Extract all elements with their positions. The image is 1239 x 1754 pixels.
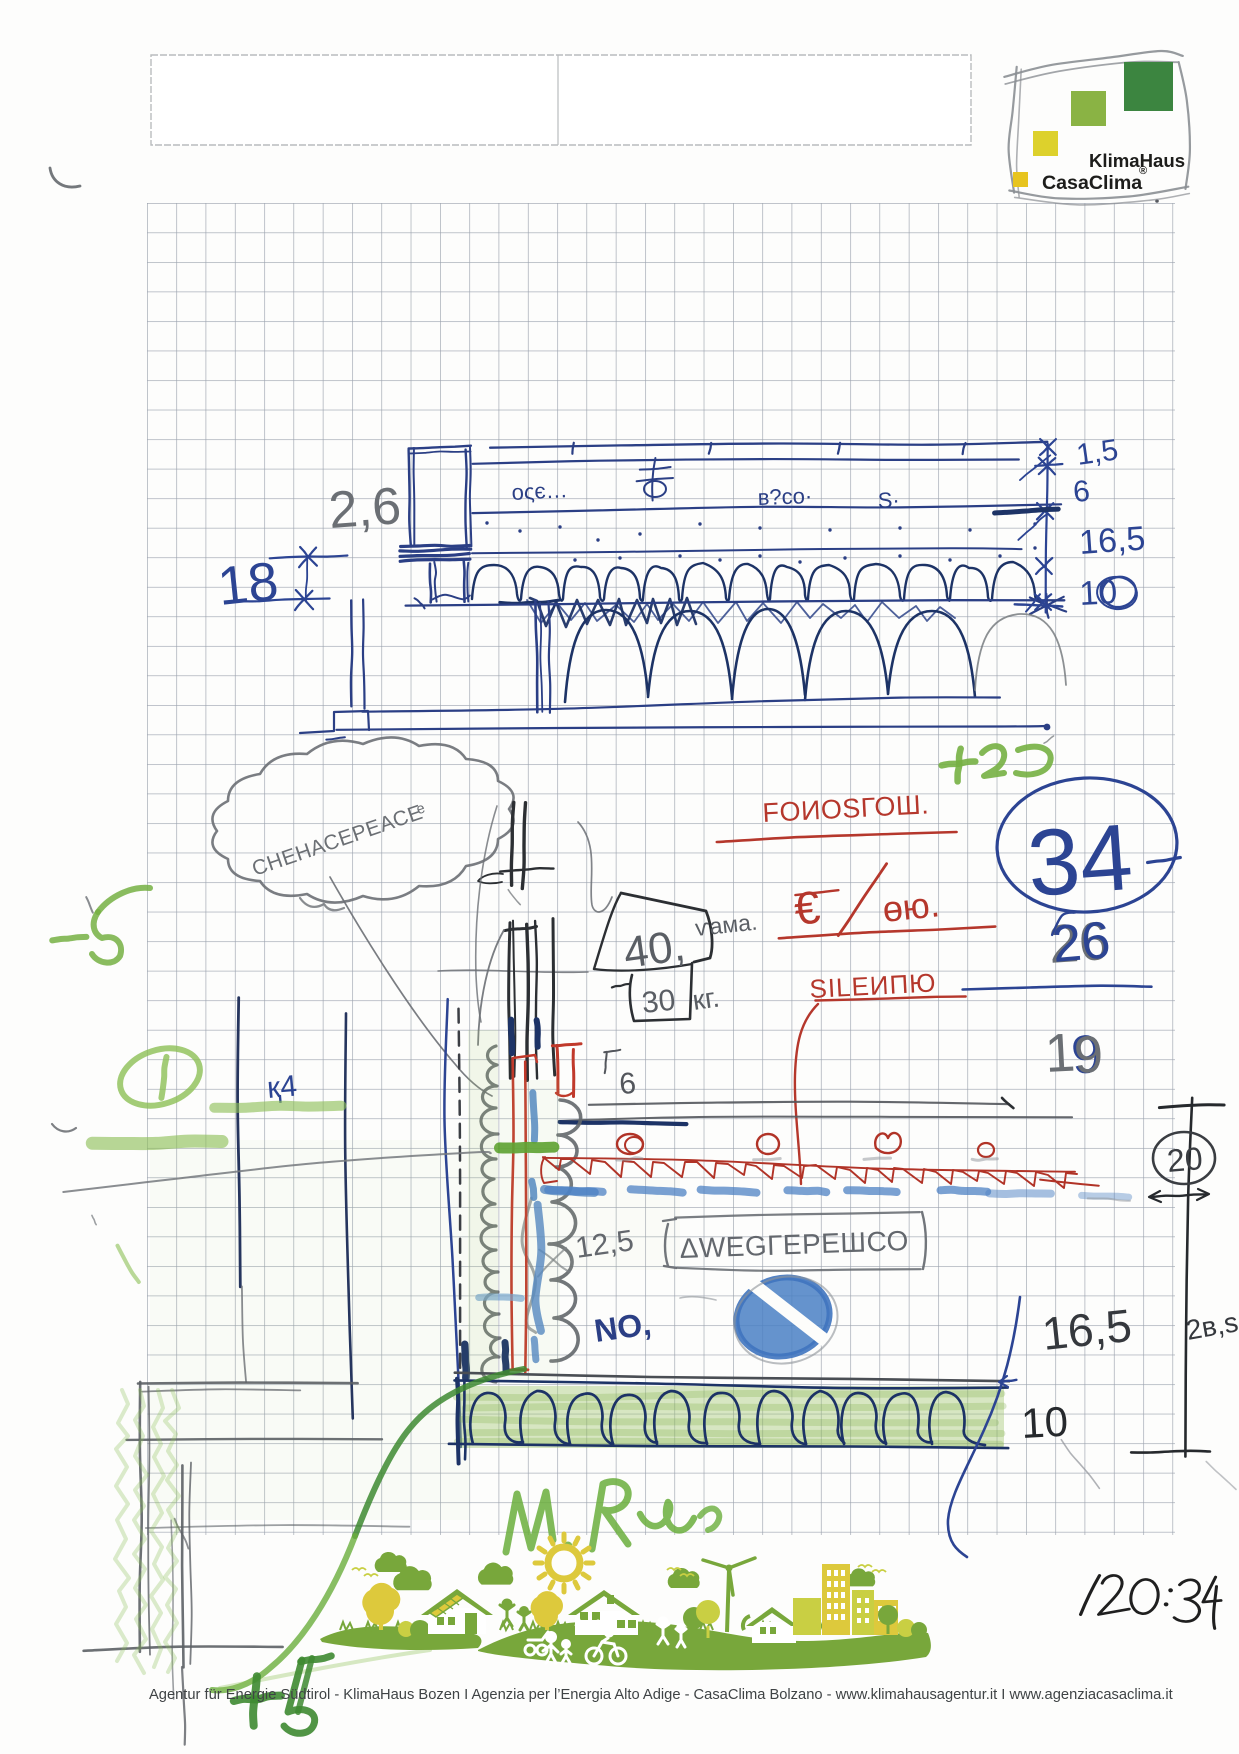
svg-text:KlimaHaus: KlimaHaus	[1089, 150, 1185, 171]
svg-text:6: 6	[618, 1067, 637, 1101]
svg-text:oςє…: oςє…	[511, 477, 568, 505]
svg-text:40,: 40,	[621, 921, 688, 978]
svg-text:30: 30	[640, 984, 677, 1020]
svg-text:16,5: 16,5	[1078, 519, 1147, 562]
svg-text:16,5: 16,5	[1040, 1299, 1134, 1360]
svg-text:2,6: 2,6	[327, 477, 403, 540]
svg-text:Agentur für Energie Südtirol -: Agentur für Energie Südtirol - KlimaHaus…	[149, 1687, 1173, 1703]
svg-text:9: 9	[1073, 1026, 1105, 1085]
svg-text:6: 6	[1072, 475, 1092, 509]
svg-text:CasaClima: CasaClima	[1042, 172, 1143, 194]
svg-text:1,5: 1,5	[1074, 433, 1120, 471]
svg-text:34: 34	[1024, 804, 1136, 916]
svg-text:€: €	[792, 881, 823, 935]
svg-text:18: 18	[215, 551, 281, 617]
svg-text:®: ®	[1139, 165, 1147, 177]
svg-text:Ѕ·: Ѕ·	[877, 487, 900, 513]
svg-text:ɵю.: ɵю.	[881, 883, 942, 930]
svg-text:в?сο·: в?сο·	[757, 483, 812, 510]
svg-text:қ4: қ4	[266, 1070, 299, 1105]
svg-text:кг.: кг.	[691, 982, 722, 1016]
svg-text:20: 20	[1165, 1140, 1204, 1179]
